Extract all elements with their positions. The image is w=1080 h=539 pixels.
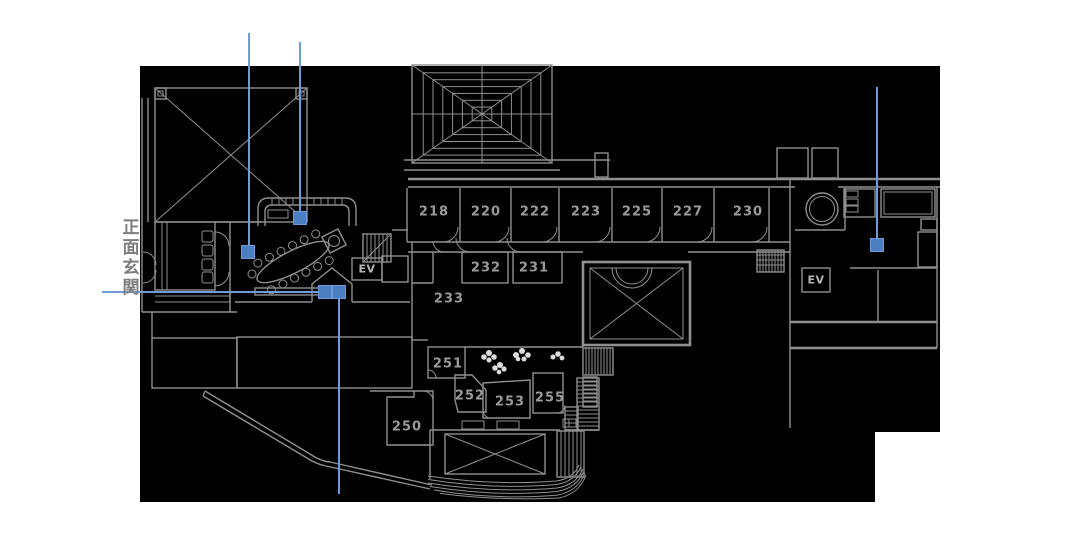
- room-label-220: 220: [471, 205, 501, 220]
- room-label-225: 225: [622, 205, 652, 220]
- room-label-231: 231: [519, 261, 549, 276]
- leader-line-5: [876, 87, 878, 240]
- map-marker-5[interactable]: [871, 239, 883, 251]
- room-label-227: 227: [673, 205, 703, 220]
- elevator-label-left: EV: [358, 263, 375, 276]
- room-label-232: 232: [471, 261, 501, 276]
- map-marker-3[interactable]: [319, 286, 331, 298]
- room-label-222: 222: [520, 205, 550, 220]
- map-marker-2[interactable]: [294, 212, 306, 224]
- room-label-230: 230: [733, 205, 763, 220]
- room-label-250: 250: [392, 420, 422, 435]
- room-label-218: 218: [419, 205, 449, 220]
- leader-line-2: [299, 42, 301, 213]
- leader-line-1: [248, 33, 250, 247]
- main-entrance-label: 正面玄関: [120, 218, 137, 298]
- map-marker-1[interactable]: [242, 246, 254, 258]
- room-label-253: 253: [495, 395, 525, 410]
- floor-plan-page: 218 220 222 223 225 227 230 232 231 233 …: [0, 0, 1080, 539]
- room-label-223: 223: [571, 205, 601, 220]
- room-label-233: 233: [434, 292, 464, 307]
- room-label-252: 252: [455, 389, 485, 404]
- elevator-label-right: EV: [807, 274, 824, 287]
- leader-line-4: [338, 298, 340, 494]
- room-label-251: 251: [433, 357, 463, 372]
- map-marker-4[interactable]: [333, 286, 345, 298]
- room-label-255: 255: [535, 391, 565, 406]
